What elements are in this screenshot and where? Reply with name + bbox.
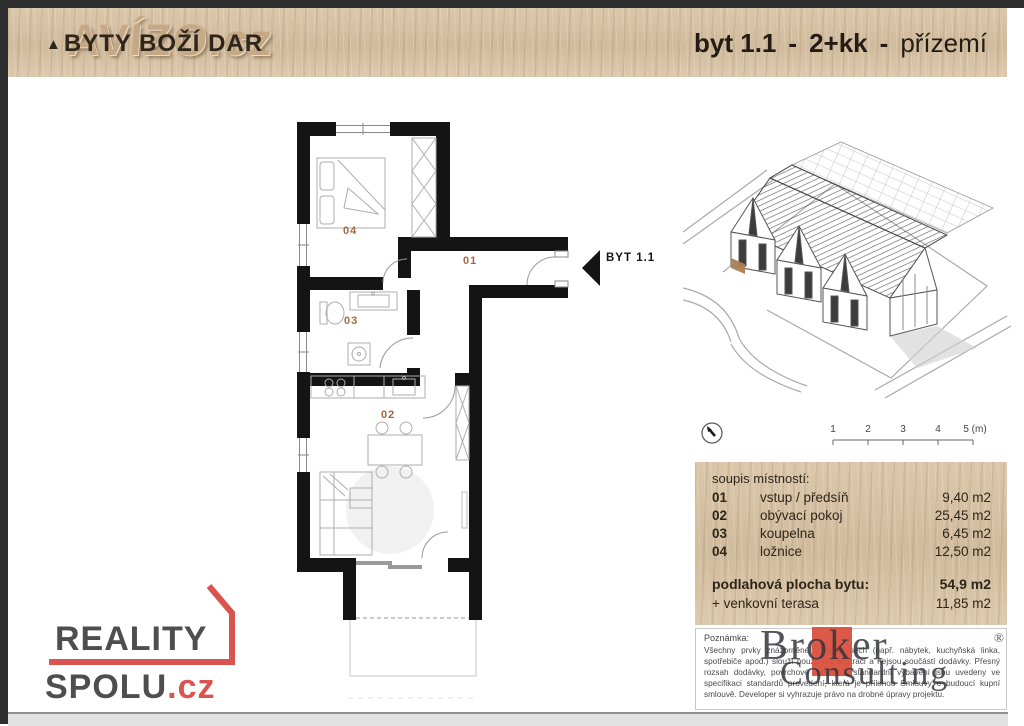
room-label-02: 02	[381, 409, 395, 421]
terrace-row: + venkovní terasa 11,85 m2	[695, 596, 1007, 614]
rug	[346, 466, 434, 554]
building-rendering	[675, 140, 1015, 400]
row-code: 04	[712, 544, 727, 559]
row-code: 02	[712, 508, 727, 523]
separator-1: -	[788, 28, 797, 58]
spolu-line: SPOLU.cz	[45, 668, 215, 707]
page-frame-top	[0, 0, 1024, 8]
terrace	[348, 618, 478, 698]
table-row: 03 koupelna 6,45 m2	[695, 526, 1007, 544]
windows	[298, 123, 390, 472]
note-text: Všechny prvky znázorněné v půdorysech (n…	[704, 645, 1000, 700]
room-list-panel: soupis místností: 01 vstup / předsíň 9,4…	[695, 462, 1007, 625]
spolu-text: SPOLU	[45, 668, 167, 706]
room-label-01: 01	[463, 255, 477, 267]
unit-id: byt 1.1	[694, 28, 776, 58]
table-row: 02 obývací pokoj 25,45 m2	[695, 508, 1007, 526]
header-bar: AVÍZO.cz ▲BYTY BOŽÍ DAR byt 1.1-2+kk-pří…	[8, 8, 1007, 77]
scale-tick-3: 3	[900, 424, 906, 435]
row-area: 9,40 m2	[942, 490, 991, 505]
flyer-page: { "header": { "watermark": "AVÍZO.cz", "…	[0, 0, 1024, 724]
spolu-tld: .cz	[167, 668, 215, 706]
row-area: 6,45 m2	[942, 526, 991, 541]
reality-line: REALITY	[55, 620, 207, 659]
terrace-label: + venkovní terasa	[712, 596, 819, 611]
entrance-arrow-icon	[582, 250, 600, 286]
room-label-04: 04	[343, 225, 357, 237]
scale-tick-5: 5 (m)	[963, 424, 986, 435]
terrace-area: 11,85 m2	[936, 596, 991, 611]
scale-line	[831, 437, 977, 447]
scale-tick-2: 2	[865, 424, 871, 435]
room-label-03: 03	[344, 315, 358, 327]
row-code: 01	[712, 490, 727, 505]
unit-floor: přízemí	[900, 28, 987, 58]
total-label: podlahová plocha bytu:	[712, 576, 869, 592]
entrance-label: BYT 1.1	[606, 252, 655, 264]
entrance-door	[527, 251, 568, 287]
reality-spolu-logo: REALITY SPOLU.cz	[30, 580, 255, 715]
project-title: ▲BYTY BOŽÍ DAR	[46, 30, 263, 58]
total-row: podlahová plocha bytu: 54,9 m2	[695, 576, 1007, 594]
note-box: Poznámka: Všechny prvky znázorněné v půd…	[695, 628, 1007, 710]
note-title: Poznámka:	[704, 633, 749, 643]
unit-layout: 2+kk	[809, 28, 868, 58]
table-row: 04 ložnice 12,50 m2	[695, 544, 1007, 562]
room-list-title: soupis místností:	[712, 471, 810, 486]
row-area: 12,50 m2	[935, 544, 991, 559]
row-name: koupelna	[760, 526, 815, 541]
avizo-triangle-icon: ▲	[46, 36, 62, 53]
row-name: obývací pokoj	[760, 508, 843, 523]
row-code: 03	[712, 526, 727, 541]
scale-tick-4: 4	[935, 424, 941, 435]
total-area: 54,9 m2	[940, 576, 991, 592]
north-arrow-icon	[700, 421, 724, 445]
scale-tick-1: 1	[830, 424, 836, 435]
page-frame-left	[0, 0, 8, 724]
floor-plan-drawing	[290, 110, 670, 710]
table-row: 01 vstup / předsíň 9,40 m2	[695, 490, 1007, 508]
separator-2: -	[880, 28, 889, 58]
terrace-sliding-door	[356, 561, 422, 569]
row-name: ložnice	[760, 544, 802, 559]
project-title-text: BYTY BOŽÍ DAR	[64, 30, 263, 57]
row-name: vstup / předsíň	[760, 490, 849, 505]
unit-title: byt 1.1-2+kk-přízemí	[694, 28, 987, 59]
row-area: 25,45 m2	[935, 508, 991, 523]
walls	[297, 122, 568, 620]
